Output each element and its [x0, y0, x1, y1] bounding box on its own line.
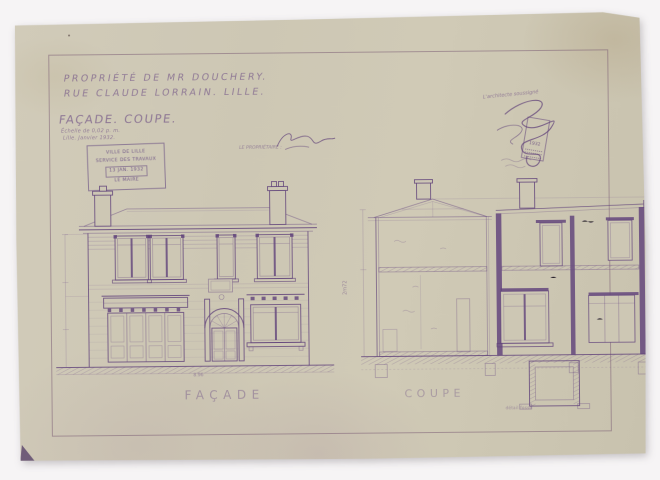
coupe-front-walls: [376, 216, 490, 356]
paper-surface: PROPRIÉTÉ DE MR DOUCHERY. RUE CLAUDE LOR…: [14, 11, 648, 463]
coupe-floor-slabs: [379, 267, 488, 357]
datum-line: [430, 197, 650, 199]
facade-storefront: [102, 295, 191, 362]
scanned-plan-page: PROPRIÉTÉ DE MR DOUCHERY. RUE CLAUDE LOR…: [0, 0, 660, 480]
coupe-chimney-right: [517, 179, 537, 209]
facade-width-dimension: 8.96: [193, 373, 203, 378]
facade-dimension-line: [62, 234, 89, 367]
title-drawing-type: FAÇADE. COUPE.: [58, 111, 178, 126]
coupe-interior-elements: [382, 240, 470, 353]
coupe-rear-lower-windows: [497, 290, 636, 347]
coupe-front-roof: [368, 198, 492, 220]
revenue-stamp-year: 1932: [529, 141, 541, 148]
coupe-foundations: [375, 362, 648, 378]
ink-speck: [68, 34, 70, 36]
coupe-rear-floor-slab: [502, 265, 639, 270]
cesspit-detail-caption: détail fosse: [506, 405, 533, 410]
corner-fold-mark: [20, 445, 36, 463]
title-property-line: PROPRIÉTÉ DE MR DOUCHERY.: [63, 72, 269, 85]
facade-upper-windows: [112, 233, 295, 283]
revenue-stamp-line: [524, 155, 541, 159]
coupe-groundline: [361, 354, 653, 370]
coupe-chimney-left: [414, 180, 432, 200]
coupe-rear-upper-windows: [540, 220, 632, 266]
scale-note: Échelle de 0,02 p. m.: [61, 128, 120, 135]
facade-right-window: [247, 294, 306, 351]
stamp-date: 13 JAN. 1932: [105, 165, 148, 177]
paper-sheet: PROPRIÉTÉ DE MR DOUCHERY. RUE CLAUDE LOR…: [14, 11, 648, 463]
title-address-line: RUE CLAUDE LORRAIN. LILLE.: [63, 87, 267, 100]
coupe-rear-cornice: [496, 200, 644, 214]
coupe-caption: COUPE: [404, 387, 465, 401]
facade-chimney-left: [93, 186, 113, 226]
proprietor-signature: [273, 126, 339, 157]
facade-chimney-right: [267, 181, 287, 224]
date-note: Lille. Janvier 1932.: [63, 135, 115, 142]
facade-caption: FAÇADE: [184, 388, 264, 403]
coupe-height-dimension: 2m72: [342, 280, 348, 294]
coupe-drawing: [359, 177, 656, 415]
